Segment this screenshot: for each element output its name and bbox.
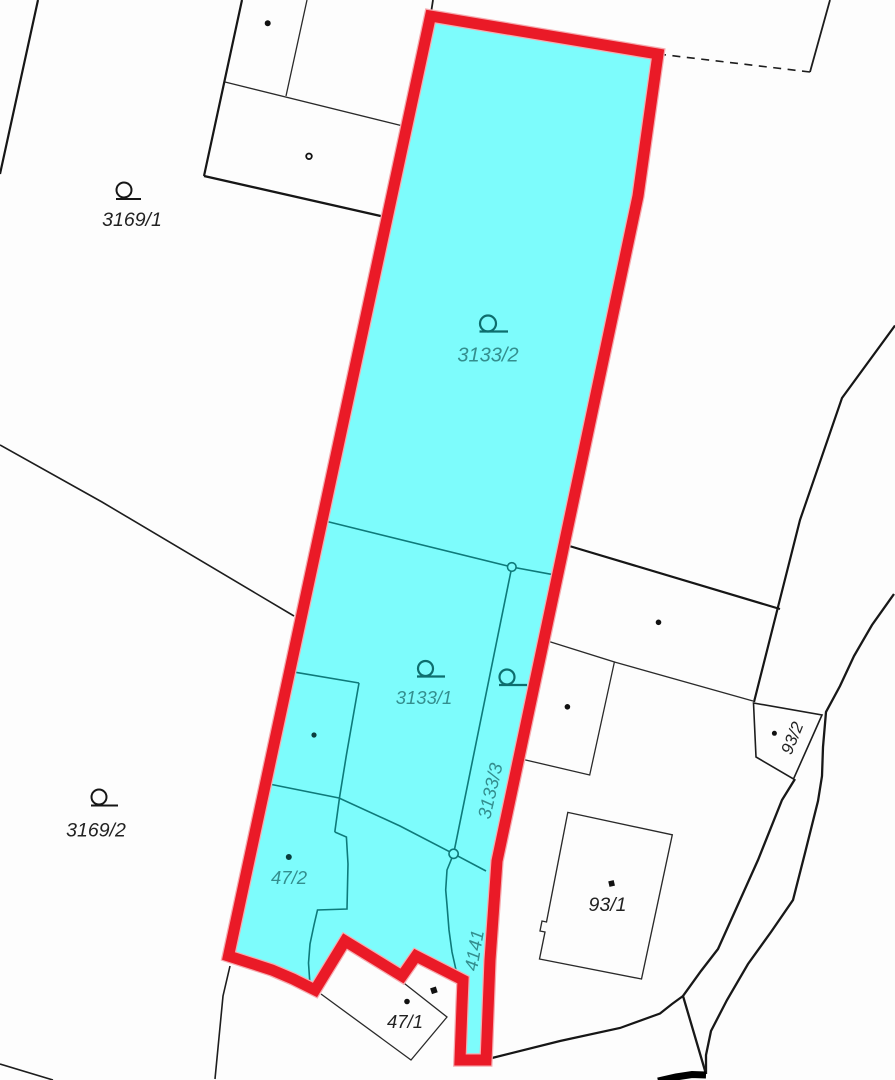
svg-text:3169/1: 3169/1 (102, 209, 162, 231)
svg-text:47/1: 47/1 (387, 1011, 423, 1032)
svg-text:3169/2: 3169/2 (66, 820, 126, 842)
svg-text:47/2: 47/2 (271, 867, 308, 888)
svg-text:93/1: 93/1 (589, 894, 627, 916)
svg-text:3133/1: 3133/1 (396, 687, 453, 708)
svg-text:3133/2: 3133/2 (457, 345, 518, 367)
